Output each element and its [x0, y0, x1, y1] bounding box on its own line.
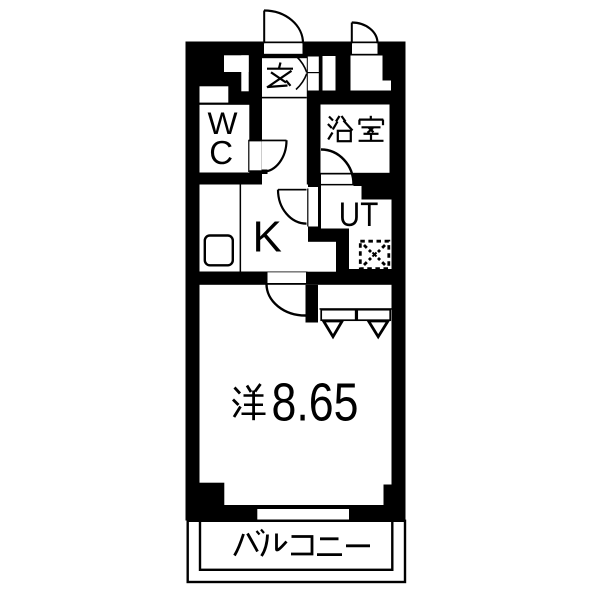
svg-text:8.65: 8.65	[272, 373, 359, 433]
svg-text:C: C	[209, 134, 233, 171]
svg-text:K: K	[253, 213, 282, 262]
svg-text:UT: UT	[339, 196, 379, 234]
